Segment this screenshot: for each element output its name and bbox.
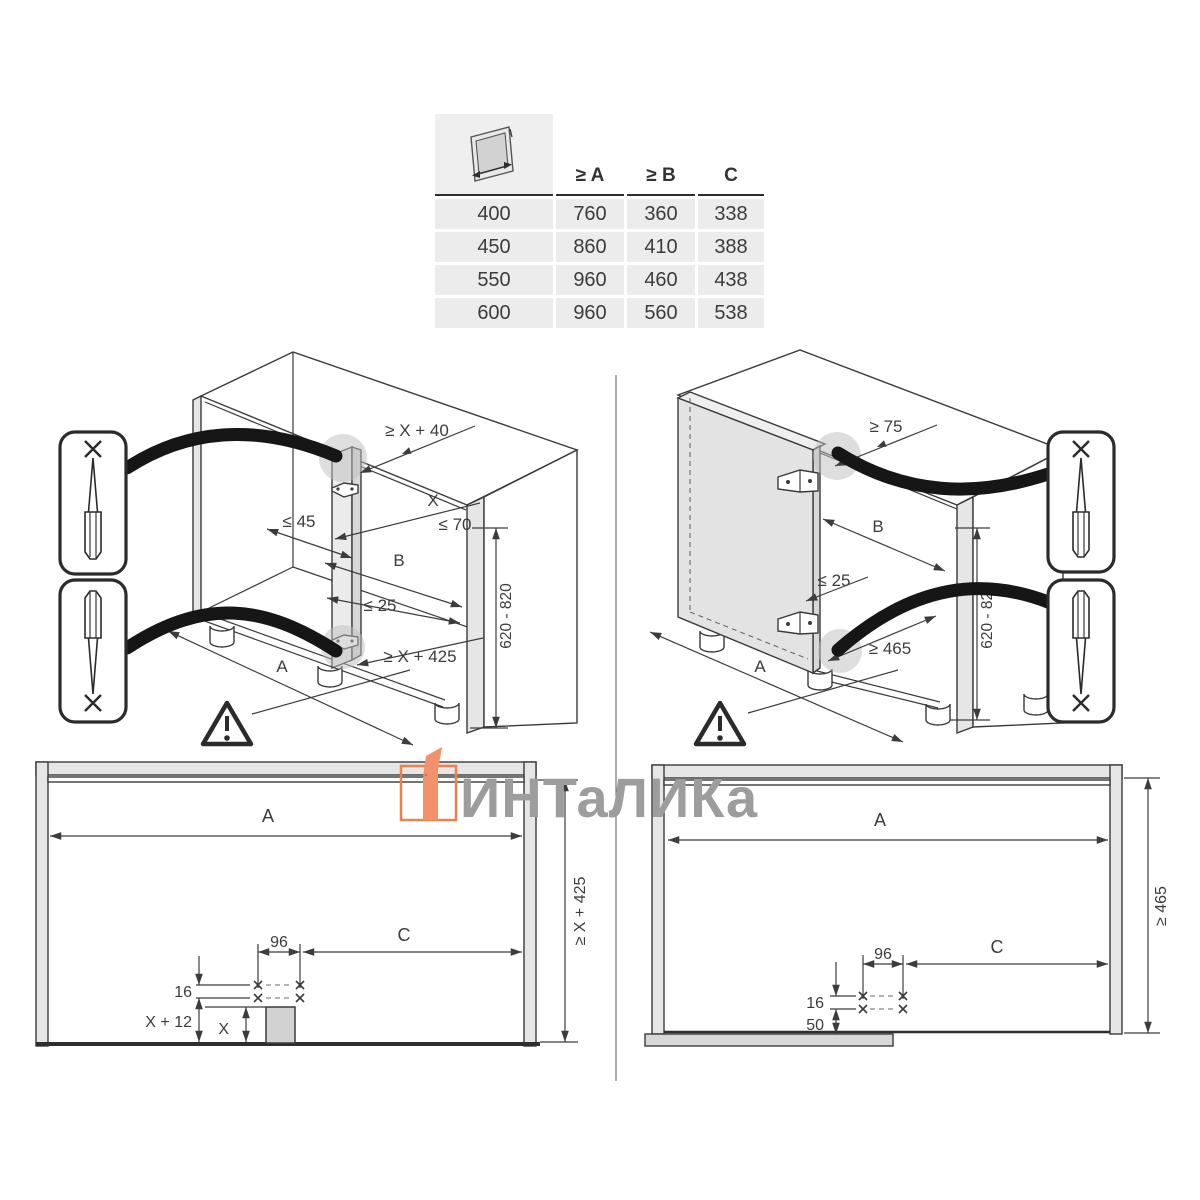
- dim-label-a: A: [874, 810, 886, 830]
- dim-label-xplus40: ≥ X + 40: [385, 421, 449, 440]
- table-cell: 600: [435, 298, 553, 328]
- table-cell: 960: [556, 298, 624, 328]
- drill-marks: [859, 992, 907, 1013]
- dim-label-50: 50: [806, 1017, 824, 1034]
- table-cell: 438: [698, 265, 764, 295]
- table-cell: 860: [556, 232, 624, 262]
- intalika-logo-icon: [398, 744, 462, 826]
- dim-label-xplus425: ≥ X + 425: [383, 647, 456, 666]
- dim-label-a: A: [754, 657, 766, 676]
- table-cell: 388: [698, 232, 764, 262]
- table-header-door-size: [435, 114, 553, 196]
- table-header-col-a: ≥ A: [556, 114, 624, 196]
- dim-label-ge465: ≥ 465: [869, 639, 911, 658]
- dim-label-xplus12: X + 12: [145, 1014, 192, 1031]
- table-cell: 450: [435, 232, 553, 262]
- obstacle-block: [266, 1007, 295, 1043]
- dim-label-ge75: ≥ 75: [870, 417, 903, 436]
- intalika-watermark: ИНТаЛИКа: [460, 770, 758, 826]
- dim-label-le25: ≤ 25: [818, 571, 851, 590]
- dim-label-b: B: [872, 517, 883, 536]
- left-cabinet-isometric: ≥ X + 40 X ≤ 70 ≤ 45 B ≤ 25 ≥ X + 425 A …: [168, 352, 577, 745]
- dim-label-96: 96: [270, 934, 288, 951]
- dim-label-a: A: [276, 657, 288, 676]
- table-cell: 760: [556, 199, 624, 229]
- door-width-icon: [459, 121, 529, 187]
- dim-label-c: C: [991, 937, 1004, 957]
- dim-label-x: X: [218, 1021, 229, 1038]
- right-cabinet-isometric: ≥ 75 B ≤ 25 ≥ 465 A 620 - 820: [650, 350, 1063, 744]
- dim-label-96: 96: [874, 946, 892, 963]
- table-cell: 560: [627, 298, 695, 328]
- bottom-panel-strip: [645, 1034, 893, 1046]
- dim-label-x: X: [427, 491, 438, 510]
- table-cell: 338: [698, 199, 764, 229]
- table-header-col-c: C: [698, 114, 764, 196]
- dim-label-ge465: ≥ 465: [1153, 886, 1170, 926]
- dim-label-b: B: [393, 551, 404, 570]
- warning-triangle: [696, 703, 744, 744]
- dim-label-16: 16: [174, 984, 192, 1001]
- table-cell: 410: [627, 232, 695, 262]
- table-cell: 538: [698, 298, 764, 328]
- drill-marks: [254, 981, 304, 1002]
- table-cell: 960: [556, 265, 624, 295]
- table-cell: 460: [627, 265, 695, 295]
- instruction-sheet: ≥ X + 40 X ≤ 70 ≤ 45 B ≤ 25 ≥ X + 425 A …: [0, 0, 1200, 1200]
- table-cell: 360: [627, 199, 695, 229]
- table-header-col-b: ≥ B: [627, 114, 695, 196]
- dim-label-xplus425: ≥ X + 425: [572, 876, 589, 945]
- spec-table: ≥ A ≥ B C 400 760 360 338 450 860 410 38…: [435, 114, 764, 328]
- dim-label-c: C: [398, 925, 411, 945]
- dim-label-height: 620 - 820: [498, 583, 515, 649]
- dim-label-le70: ≤ 70: [439, 515, 472, 534]
- table-cell: 400: [435, 199, 553, 229]
- dim-label-le25: ≤ 25: [364, 596, 397, 615]
- dim-label-16: 16: [806, 995, 824, 1012]
- warning-triangle: [203, 703, 251, 744]
- table-cell: 550: [435, 265, 553, 295]
- dim-label-le45: ≤ 45: [283, 512, 316, 531]
- dim-label-a: A: [262, 806, 274, 826]
